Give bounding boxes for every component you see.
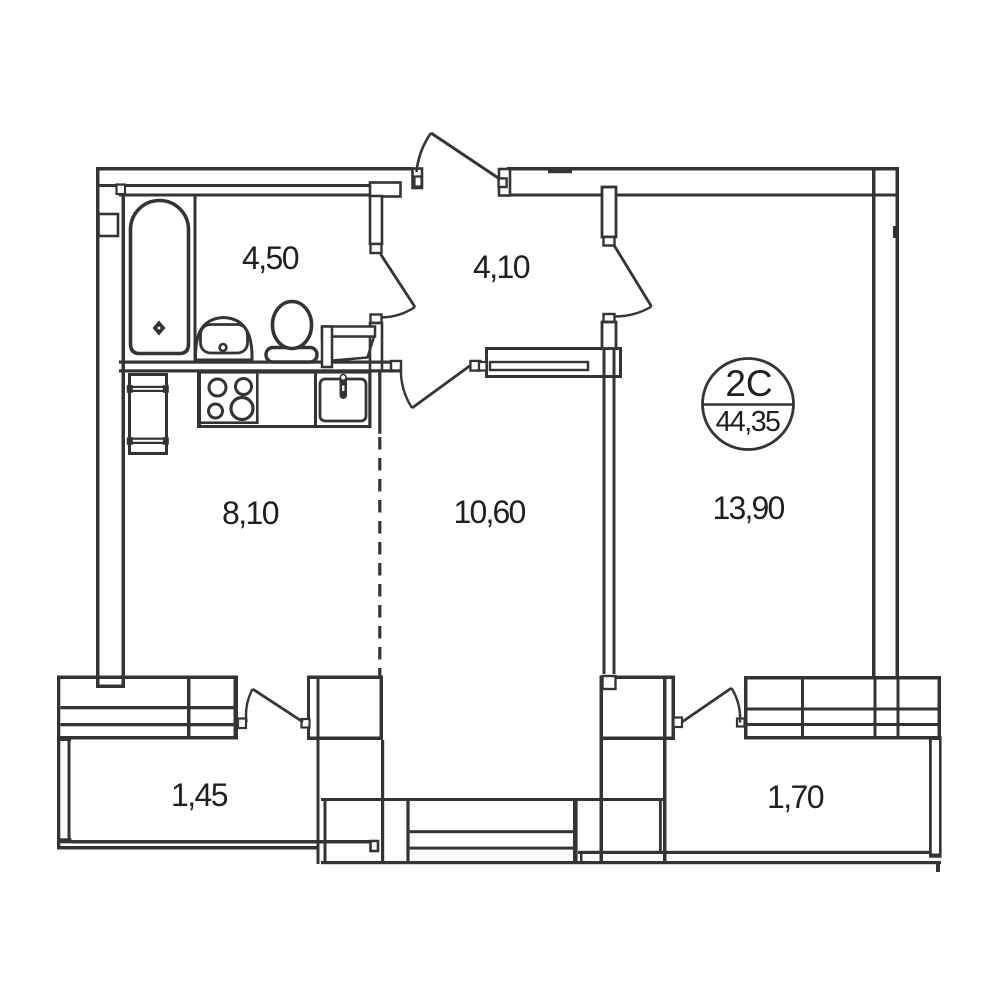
svg-text:2C: 2C: [725, 363, 772, 404]
svg-text:13,90: 13,90: [712, 490, 784, 526]
svg-text:44,35: 44,35: [716, 406, 780, 438]
svg-text:4,50: 4,50: [242, 240, 299, 276]
svg-text:4,10: 4,10: [473, 249, 530, 285]
svg-text:1,70: 1,70: [767, 779, 824, 815]
svg-text:8,10: 8,10: [222, 495, 279, 531]
svg-text:10,60: 10,60: [453, 494, 525, 530]
svg-text:1,45: 1,45: [171, 777, 228, 813]
